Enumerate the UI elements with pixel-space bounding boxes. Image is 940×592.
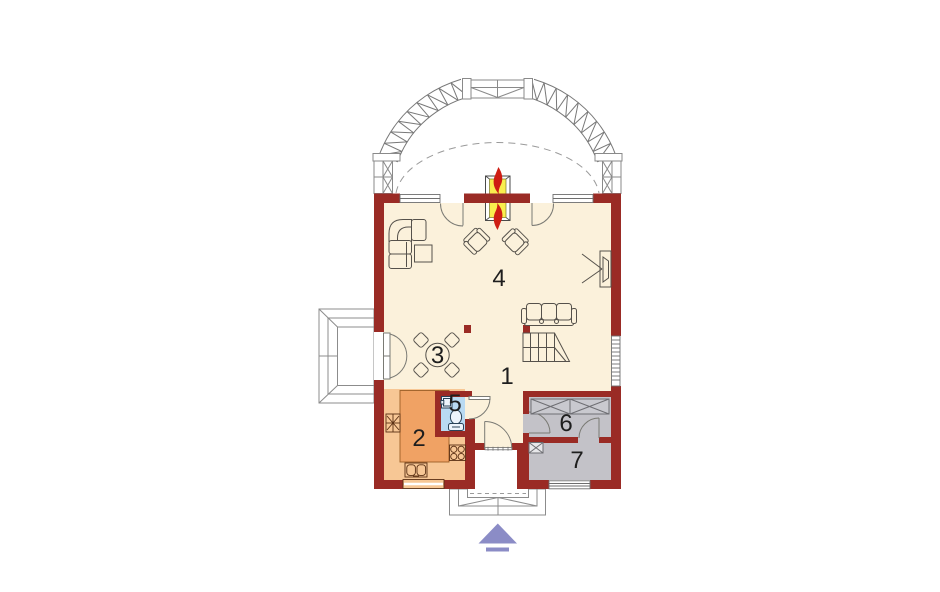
svg-text:1: 1 xyxy=(500,363,513,390)
svg-text:5: 5 xyxy=(448,390,461,417)
svg-text:6: 6 xyxy=(559,410,572,437)
svg-text:3: 3 xyxy=(431,342,444,369)
svg-text:2: 2 xyxy=(412,425,425,452)
svg-text:4: 4 xyxy=(492,265,505,292)
svg-text:7: 7 xyxy=(570,447,583,474)
